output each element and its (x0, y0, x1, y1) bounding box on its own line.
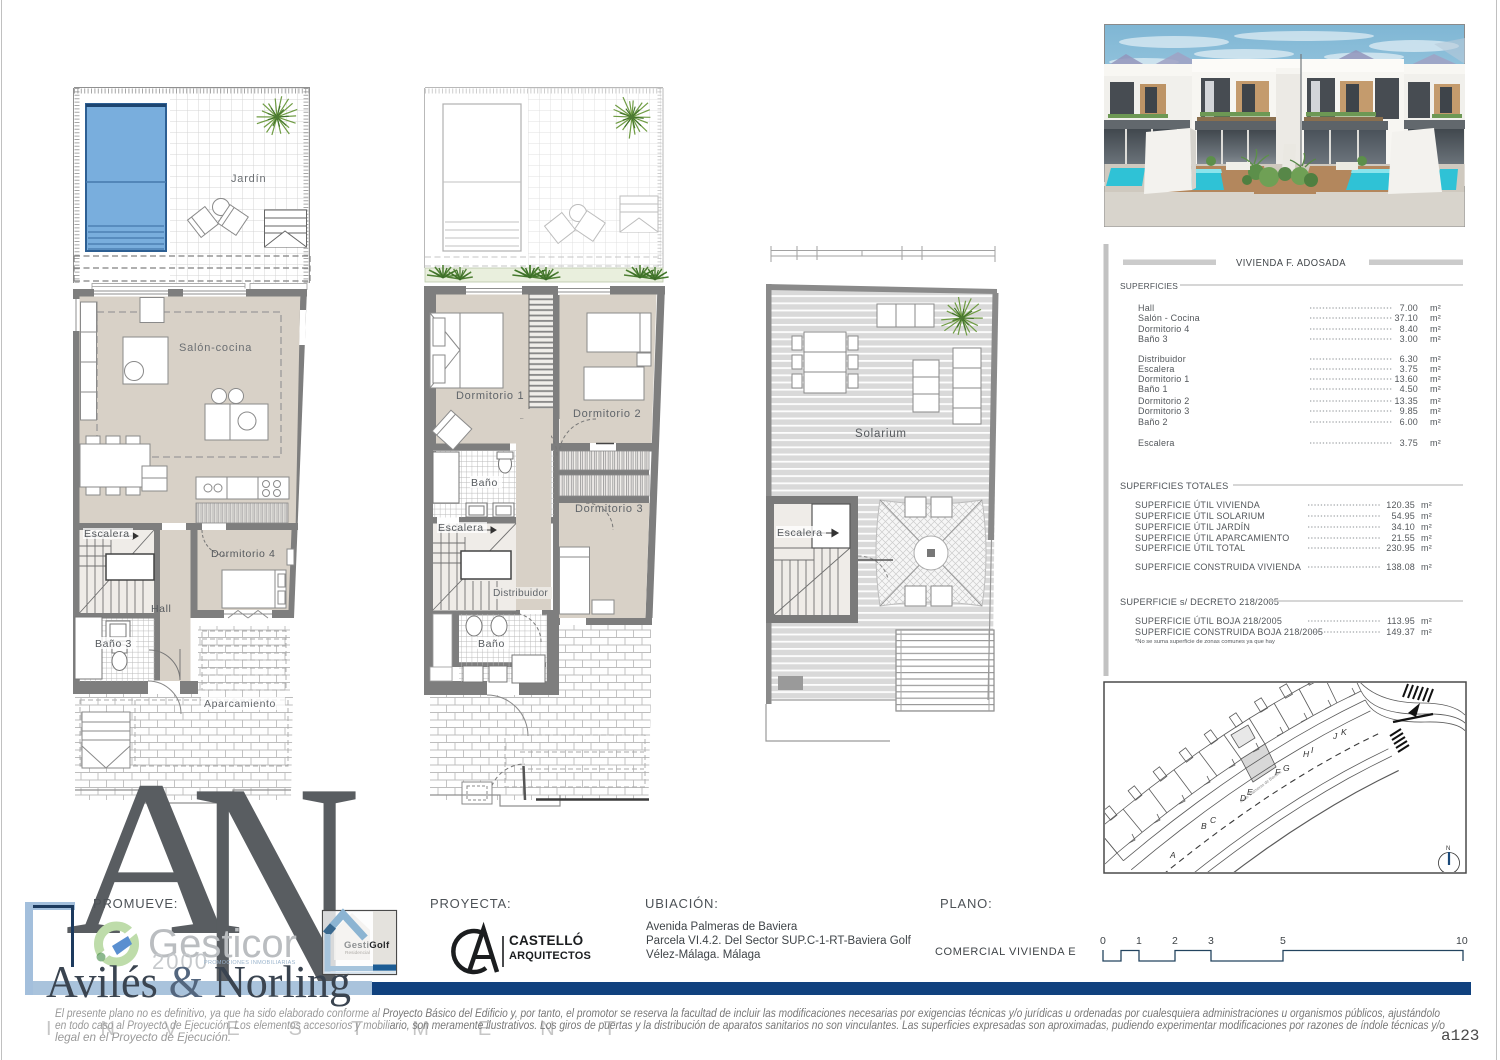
svg-text:Escalera: Escalera (438, 522, 484, 534)
svg-text:legal en el Proyecto de Ejecuc: legal en el Proyecto de Ejecución. (55, 1031, 231, 1044)
svg-text:SUPERFICIE ÚTIL VIVIENDA: SUPERFICIE ÚTIL VIVIENDA (1135, 500, 1260, 510)
svg-text:Vélez-Málaga. Málaga: Vélez-Málaga. Málaga (646, 949, 761, 961)
svg-text:Escalera: Escalera (777, 527, 823, 539)
svg-text:m²: m² (1430, 354, 1441, 364)
svg-text:13.35: 13.35 (1394, 396, 1418, 406)
svg-text:Baño 1: Baño 1 (1138, 384, 1168, 394)
svg-text:SUPERFICIE ÚTIL JARDÍN: SUPERFICIE ÚTIL JARDÍN (1135, 522, 1250, 532)
svg-text:34.10: 34.10 (1391, 522, 1415, 532)
svg-text:Dormitorio 1: Dormitorio 1 (456, 390, 524, 402)
svg-text:Dormitorio 3: Dormitorio 3 (575, 503, 643, 515)
svg-text:m²: m² (1430, 334, 1441, 344)
svg-text:3: 3 (1208, 935, 1214, 947)
svg-text:3.00: 3.00 (1400, 334, 1418, 344)
svg-text:m²: m² (1421, 627, 1432, 637)
svg-text:m²: m² (1430, 303, 1441, 313)
svg-text:m²: m² (1430, 364, 1441, 374)
svg-text:Avenida Palmeras de Baviera: Avenida Palmeras de Baviera (646, 921, 798, 933)
svg-text:4.50: 4.50 (1400, 384, 1418, 394)
svg-text:113.95: 113.95 (1387, 616, 1415, 626)
svg-text:Baño 2: Baño 2 (1138, 417, 1168, 427)
svg-text:UBIACIÓN:: UBIACIÓN: (645, 896, 719, 911)
svg-text:m²: m² (1430, 384, 1441, 394)
svg-text:37.10: 37.10 (1394, 313, 1418, 323)
svg-text:m²: m² (1430, 324, 1441, 334)
svg-text:CASTELLÓ: CASTELLÓ (509, 933, 583, 948)
svg-text:21.55: 21.55 (1391, 533, 1415, 543)
svg-text:Avilés & Norling: Avilés & Norling (46, 956, 351, 1007)
svg-text:m²: m² (1430, 374, 1441, 384)
svg-text:Baño 3: Baño 3 (1138, 334, 1168, 344)
svg-text:m²: m² (1421, 533, 1432, 543)
svg-text:VIVIENDA F. ADOSADA: VIVIENDA F. ADOSADA (1236, 257, 1346, 269)
svg-text:2: 2 (1172, 935, 1178, 947)
svg-text:Distribuidor: Distribuidor (493, 588, 548, 599)
svg-text:*No se suma superficie de zona: *No se suma superficie de zonas comunes … (1135, 639, 1275, 645)
svg-text:m²: m² (1421, 511, 1432, 521)
svg-text:PROYECTA:: PROYECTA: (430, 896, 511, 911)
svg-text:SUPERFICIE ÚTIL BOJA 218/2005: SUPERFICIE ÚTIL BOJA 218/2005 (1135, 616, 1282, 626)
svg-text:Aparcamiento: Aparcamiento (204, 698, 276, 710)
svg-text:Escalera: Escalera (1138, 364, 1175, 374)
svg-text:1: 1 (1136, 935, 1142, 947)
svg-text:Hall: Hall (1138, 303, 1154, 313)
svg-text:m²: m² (1421, 543, 1432, 553)
svg-text:138.08: 138.08 (1386, 562, 1415, 572)
svg-text:Dormitorio 3: Dormitorio 3 (1138, 406, 1189, 416)
svg-text:54.95: 54.95 (1391, 511, 1415, 521)
svg-text:Dormitorio 2: Dormitorio 2 (1138, 396, 1189, 406)
svg-text:5: 5 (1280, 935, 1286, 947)
svg-text:m²: m² (1421, 562, 1432, 572)
svg-text:Dormitorio 2: Dormitorio 2 (573, 408, 641, 420)
svg-text:Escalera: Escalera (1138, 438, 1175, 448)
svg-text:SUPERFICIE ÚTIL SOLARIUM: SUPERFICIE ÚTIL SOLARIUM (1135, 511, 1265, 521)
svg-text:SUPERFICIE ÚTIL TOTAL: SUPERFICIE ÚTIL TOTAL (1135, 543, 1245, 553)
svg-text:SUPERFICIES TOTALES: SUPERFICIES TOTALES (1120, 481, 1228, 491)
svg-text:PROMUEVE:: PROMUEVE: (93, 896, 178, 911)
svg-text:m²: m² (1430, 406, 1441, 416)
svg-text:m²: m² (1430, 438, 1441, 448)
svg-text:SUPERFICIE CONSTRUIDA VIVIENDA: SUPERFICIE CONSTRUIDA VIVIENDA (1135, 562, 1301, 572)
svg-text:ARQUITECTOS: ARQUITECTOS (509, 950, 591, 962)
svg-text:149.37: 149.37 (1386, 627, 1415, 637)
svg-text:120.35: 120.35 (1386, 500, 1415, 510)
svg-text:Hall: Hall (151, 603, 172, 615)
svg-text:7.00: 7.00 (1400, 303, 1418, 313)
svg-text:Dormitorio 4: Dormitorio 4 (1138, 324, 1189, 334)
svg-text:Baño 3: Baño 3 (95, 638, 132, 650)
svg-text:m²: m² (1421, 500, 1432, 510)
svg-text:en todo caso al Proyecto de Ej: en todo caso al Proyecto de Ejecución. L… (55, 1019, 1445, 1032)
svg-text:Dormitorio 4: Dormitorio 4 (211, 548, 275, 560)
svg-text:Solarium: Solarium (855, 428, 907, 440)
svg-text:SUPERFICIE ÚTIL APARCAMIENTO: SUPERFICIE ÚTIL APARCAMIENTO (1135, 533, 1289, 543)
svg-text:9.85: 9.85 (1400, 406, 1418, 416)
svg-text:F: F (1275, 767, 1281, 777)
svg-text:8.40: 8.40 (1400, 324, 1418, 334)
svg-text:J: J (1332, 731, 1338, 741)
svg-text:SUPERFICIE CONSTRUIDA BOJA 218: SUPERFICIE CONSTRUIDA BOJA 218/2005 (1135, 627, 1323, 637)
svg-text:m²: m² (1421, 522, 1432, 532)
svg-text:Salón-cocina: Salón-cocina (179, 342, 252, 354)
svg-text:SUPERFICIES: SUPERFICIES (1120, 281, 1178, 291)
svg-text:SUPERFICIE s/ DECRETO 218/200: SUPERFICIE s/ DECRETO 218/2005 (1120, 597, 1279, 607)
svg-text:m²: m² (1430, 313, 1441, 323)
svg-text:K: K (1341, 727, 1347, 737)
svg-text:Baño: Baño (471, 477, 498, 489)
svg-text:Parcela VI.4.2. Del Sector SUP: Parcela VI.4.2. Del Sector SUP.C-1-RT-Ba… (646, 935, 912, 947)
svg-text:3.75: 3.75 (1400, 364, 1418, 374)
svg-text:Escalera: Escalera (84, 528, 130, 540)
svg-text:GestiGolf: GestiGolf (344, 940, 390, 951)
svg-text:Baño: Baño (478, 638, 505, 650)
svg-text:13.60: 13.60 (1394, 374, 1418, 384)
svg-text:a123: a123 (1441, 1027, 1479, 1045)
svg-text:Distribuidor: Distribuidor (1138, 354, 1186, 364)
svg-text:Salón - Cocina: Salón - Cocina (1138, 313, 1200, 323)
svg-text:m²: m² (1430, 396, 1441, 406)
svg-text:PLANO:: PLANO: (940, 896, 992, 911)
svg-text:6.00: 6.00 (1400, 417, 1418, 427)
svg-text:0: 0 (1100, 935, 1106, 947)
svg-text:m²: m² (1430, 417, 1441, 427)
svg-text:m²: m² (1421, 616, 1432, 626)
svg-text:G: G (1283, 763, 1290, 773)
svg-text:10: 10 (1456, 935, 1468, 947)
svg-text:3.75: 3.75 (1400, 438, 1418, 448)
svg-text:COMERCIAL VIVIENDA E: COMERCIAL VIVIENDA E (935, 946, 1076, 958)
svg-text:230.95: 230.95 (1386, 543, 1415, 553)
svg-text:H: H (1303, 749, 1310, 759)
svg-text:Dormitorio 1: Dormitorio 1 (1138, 374, 1189, 384)
svg-text:Residencial: Residencial (345, 950, 370, 956)
svg-text:6.30: 6.30 (1400, 354, 1418, 364)
svg-text:Jardín: Jardín (231, 173, 266, 185)
